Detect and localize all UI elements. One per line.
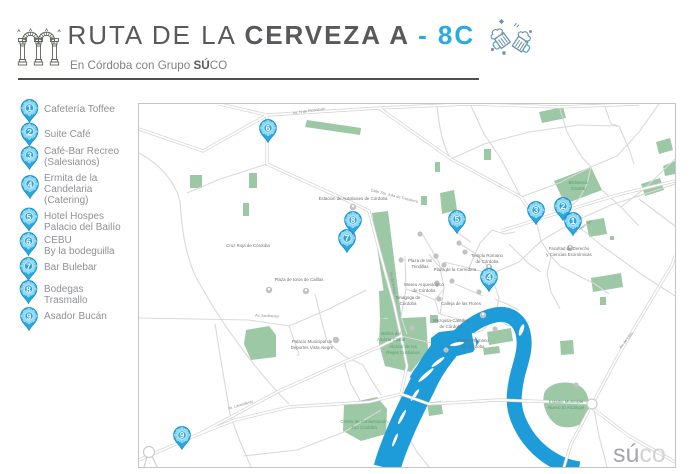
svg-text:Calleja de las Flores: Calleja de las Flores bbox=[441, 301, 482, 306]
svg-text:Zoo Córdoba: Zoo Córdoba bbox=[351, 425, 377, 430]
svg-text:6: 6 bbox=[266, 123, 271, 133]
svg-text:7: 7 bbox=[345, 233, 350, 243]
svg-text:de Córdoba: de Córdoba bbox=[476, 259, 500, 264]
svg-text:Baños del: Baños del bbox=[381, 331, 401, 336]
svg-text:Tendillas: Tendillas bbox=[411, 264, 429, 269]
svg-text:4: 4 bbox=[487, 272, 492, 282]
svg-text:7: 7 bbox=[26, 262, 31, 272]
svg-text:Alcázar de los: Alcázar de los bbox=[389, 344, 417, 349]
svg-text:Mezquita-Catedral: Mezquita-Catedral bbox=[433, 318, 469, 323]
svg-text:de Córdoba: de Córdoba bbox=[413, 288, 437, 293]
svg-text:Reyes Cristianos: Reyes Cristianos bbox=[386, 350, 420, 355]
svg-text:Estadio Municipal: Estadio Municipal bbox=[549, 399, 583, 404]
svg-text:Sinagoga de: Sinagoga de bbox=[396, 295, 421, 300]
svg-text:súco: súco bbox=[613, 440, 666, 468]
svg-text:de Córdoba: de Córdoba bbox=[462, 344, 486, 349]
svg-text:Estación de Autobuses de Córdo: Estación de Autobuses de Córdoba bbox=[319, 196, 388, 201]
svg-text:3: 3 bbox=[27, 151, 32, 161]
svg-text:9: 9 bbox=[27, 312, 32, 322]
svg-text:Av. Jardineras: Av. Jardineras bbox=[255, 314, 279, 319]
svg-text:9: 9 bbox=[180, 430, 185, 440]
svg-text:Cruz Roja de Córdoba: Cruz Roja de Córdoba bbox=[226, 243, 270, 248]
svg-text:de Córdoba: de Córdoba bbox=[440, 324, 464, 329]
svg-text:Nuevo El Arcángel: Nuevo El Arcángel bbox=[548, 405, 584, 410]
svg-text:3: 3 bbox=[534, 205, 539, 215]
svg-text:8: 8 bbox=[26, 285, 31, 295]
svg-text:2: 2 bbox=[27, 127, 32, 137]
svg-text:5: 5 bbox=[455, 214, 460, 224]
svg-text:Centro de Conservación: Centro de Conservación bbox=[340, 419, 388, 424]
svg-text:Puente Romano: Puente Romano bbox=[457, 338, 489, 343]
svg-text:5: 5 bbox=[27, 212, 32, 222]
svg-text:Plaza de toros de Califas: Plaza de toros de Califas bbox=[275, 277, 325, 282]
svg-text:Palacio Municipal de: Palacio Municipal de bbox=[292, 339, 333, 344]
svg-text:Córdoba: Córdoba bbox=[400, 301, 417, 306]
svg-text:Deportes Vista Alegre: Deportes Vista Alegre bbox=[291, 345, 334, 350]
svg-text:Museo Arqueológico: Museo Arqueológico bbox=[404, 282, 444, 287]
svg-text:Templo Romano: Templo Romano bbox=[471, 253, 504, 258]
svg-text:1: 1 bbox=[27, 103, 32, 113]
svg-text:y Ciencias Económicas: y Ciencias Económicas bbox=[546, 252, 592, 257]
svg-text:Biblioteca: Biblioteca bbox=[568, 180, 588, 185]
svg-text:2: 2 bbox=[561, 201, 566, 211]
svg-text:8: 8 bbox=[351, 215, 356, 225]
svg-text:Plaza de la Corredera: Plaza de la Corredera bbox=[434, 267, 477, 272]
svg-text:Central: Central bbox=[571, 186, 585, 191]
svg-text:4: 4 bbox=[28, 180, 33, 190]
svg-text:Alcázar Califal: Alcázar Califal bbox=[377, 337, 405, 342]
svg-text:Facultad de Derecho: Facultad de Derecho bbox=[549, 246, 590, 251]
svg-text:6: 6 bbox=[26, 237, 31, 247]
svg-text:1: 1 bbox=[571, 216, 576, 226]
svg-text:Plaza de las: Plaza de las bbox=[408, 258, 433, 263]
